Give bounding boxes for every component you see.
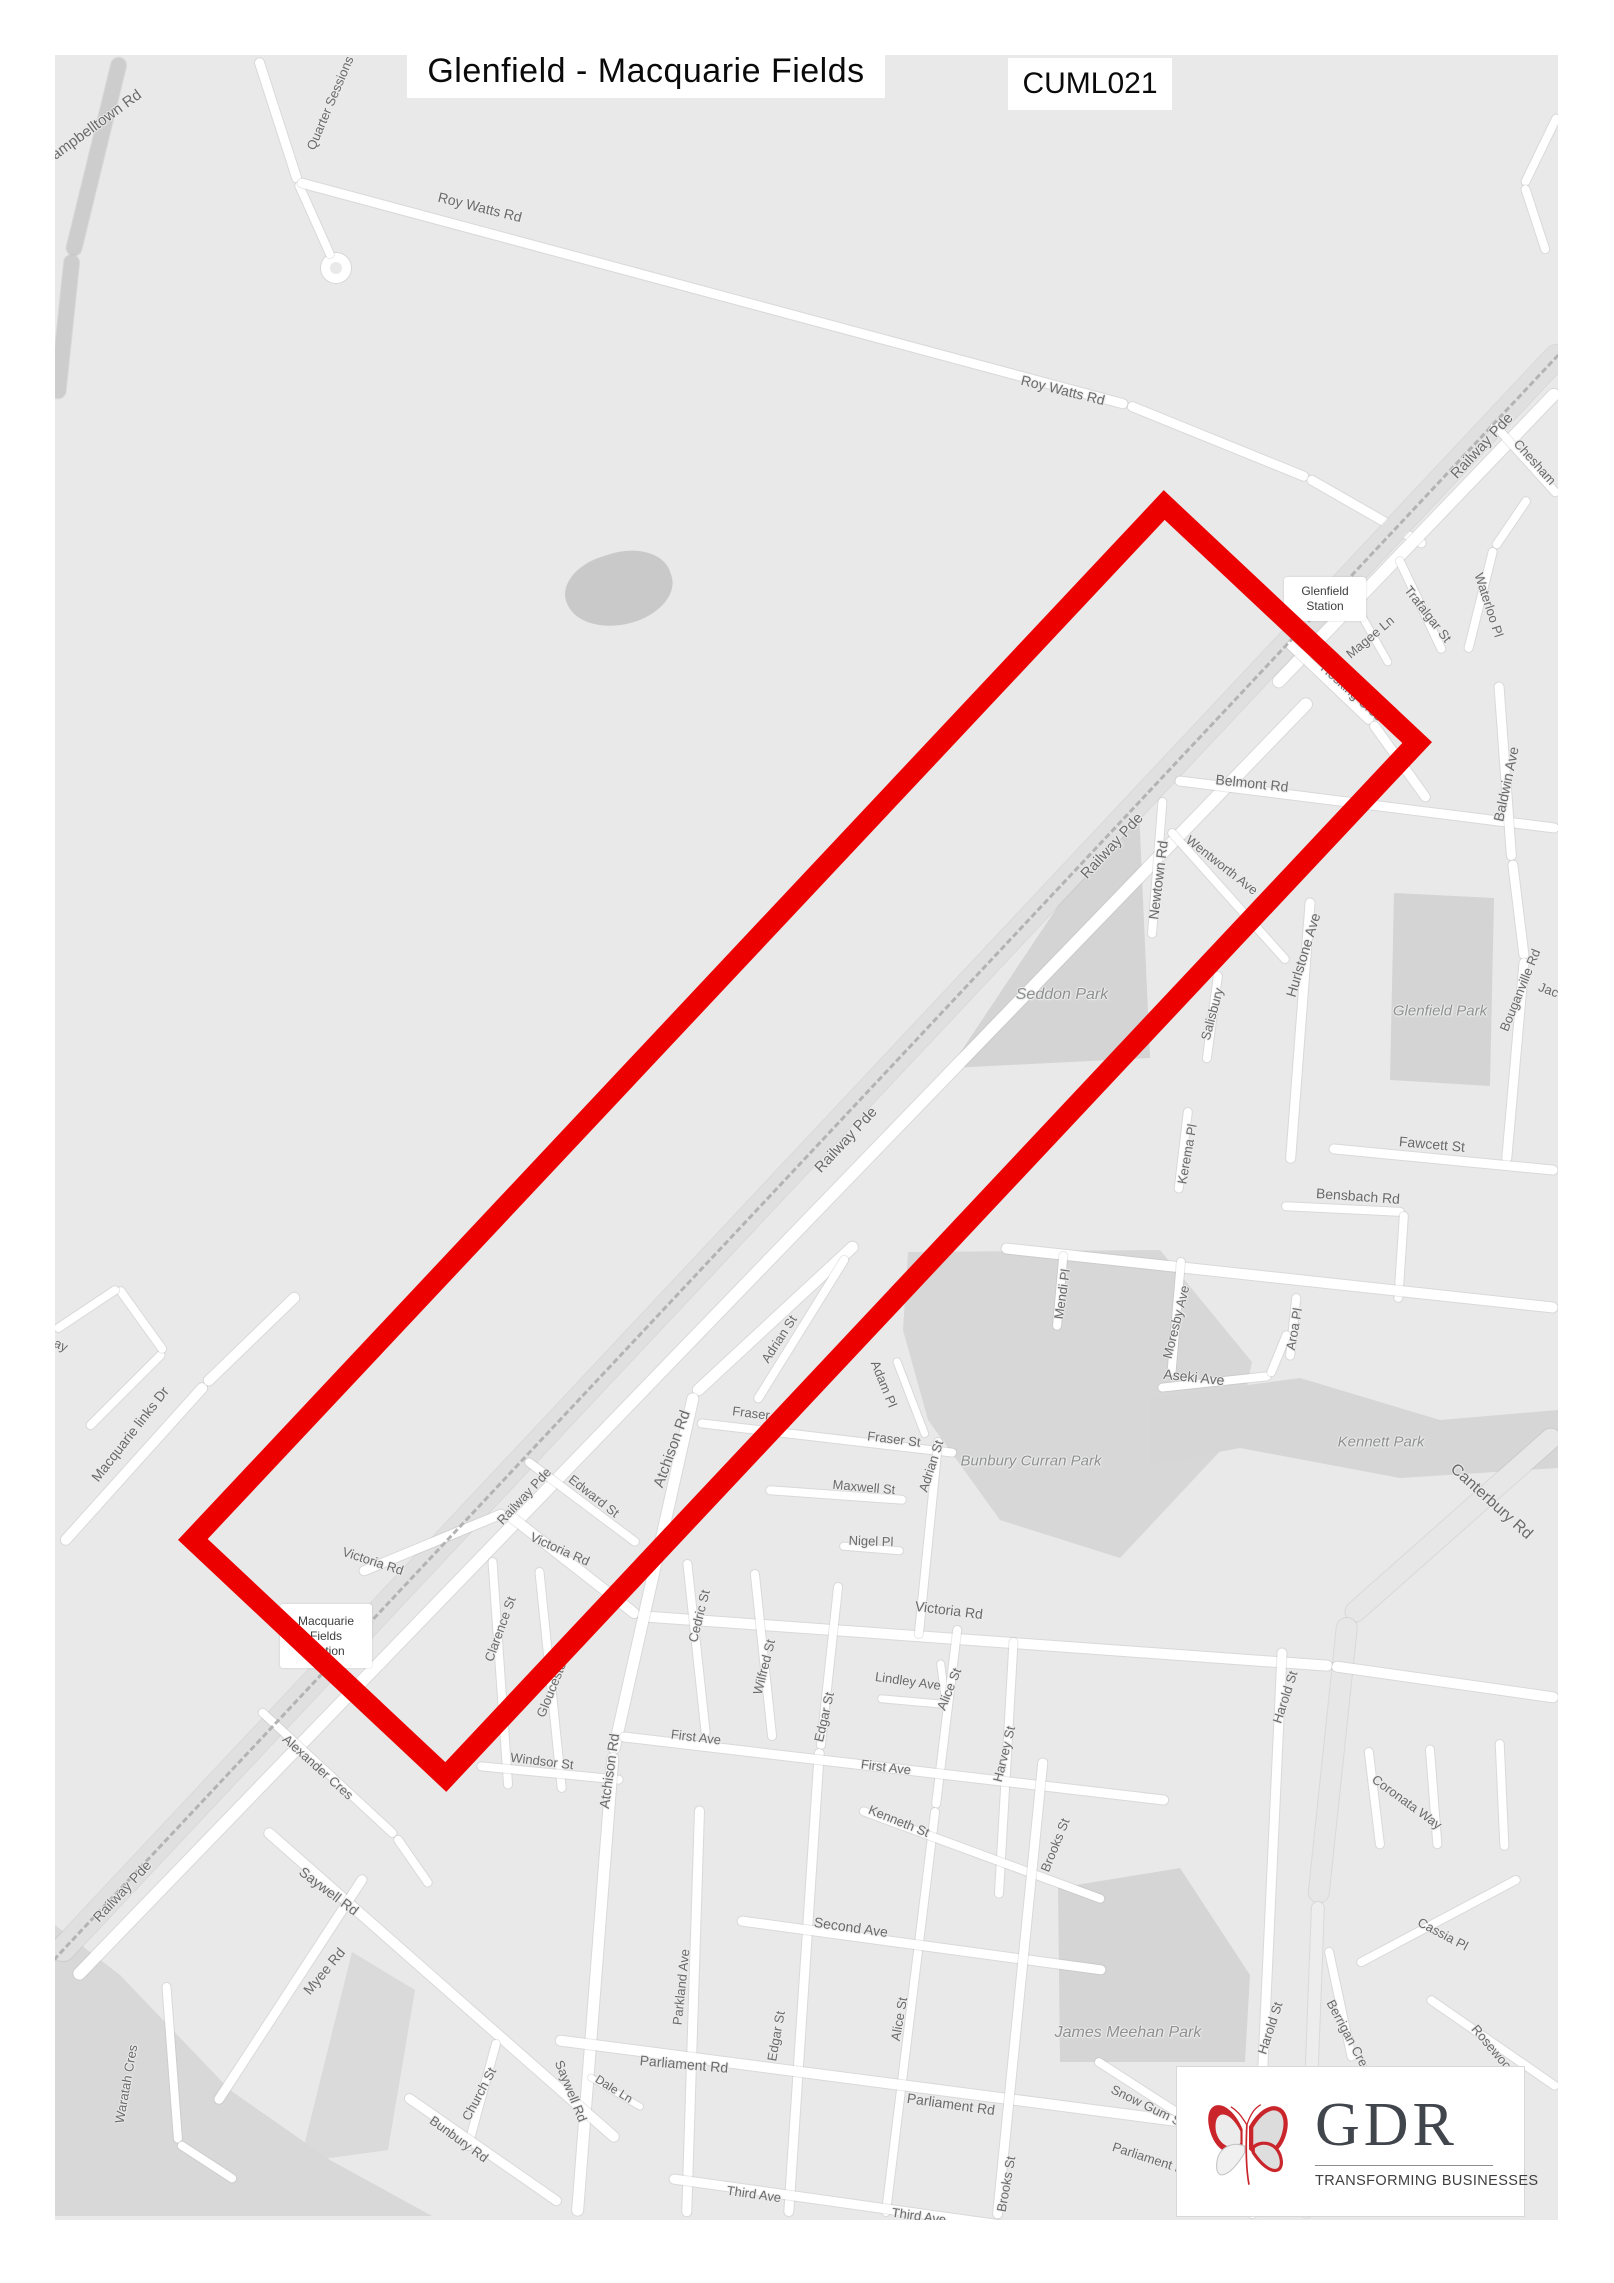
- street-label: Roy Watts Rd: [1019, 372, 1106, 408]
- station-label-line: Station: [1284, 599, 1366, 614]
- road-segment: [55, 1285, 120, 1334]
- road-segment: [393, 1834, 434, 1888]
- map-world: Campbelltown RdQuarter SessionsRoy Watts…: [55, 55, 1558, 2220]
- park-label: James Meehan Park: [1055, 2024, 1202, 2042]
- road-segment: [572, 1753, 619, 2217]
- road-segment: [254, 57, 303, 184]
- street-label: Edgar St: [764, 2010, 788, 2062]
- road-segment: [1426, 1745, 1442, 1849]
- street-label: Berrigan Cres: [1324, 1997, 1375, 2075]
- road-segment: [785, 1749, 825, 2217]
- road-segment: [58, 1381, 208, 1547]
- road-segment: [683, 1560, 710, 1737]
- map-title-box: Glenfield - Macquarie Fields: [407, 44, 885, 98]
- street-label: Third Ave: [891, 2205, 947, 2220]
- road-segment: [55, 254, 79, 399]
- street-label: Third Ave: [726, 2183, 782, 2205]
- street-label: Salisbury: [1198, 986, 1226, 1042]
- street-label: Wilfred St: [750, 1638, 778, 1696]
- street-label: Jacq: [1537, 979, 1558, 1002]
- road-segment: [1331, 1661, 1558, 1703]
- street-label: Harold St: [1269, 1669, 1300, 1725]
- street-label: Lindley Ave: [874, 1669, 942, 1693]
- park-label: Glenfield Park: [1393, 1003, 1487, 1020]
- street-label: Alexander Cres: [280, 1731, 357, 1802]
- gdr-logo: GDR TRANSFORMING BUSINESSES: [1176, 2066, 1525, 2217]
- street-label: ay: [55, 1335, 70, 1354]
- butterfly-icon: [1185, 2078, 1313, 2206]
- street-label: Bunbury Rd: [427, 2113, 491, 2165]
- highlight-rectangle: [178, 490, 1432, 1792]
- road-segment: [1496, 1740, 1509, 1850]
- road-segment: [1356, 1874, 1522, 1967]
- road-segment: [638, 1611, 1333, 1671]
- page-title: Glenfield - Macquarie Fields: [427, 52, 864, 91]
- street-label: Dale Ln: [593, 2072, 636, 2106]
- street-label: Nigel Pl: [848, 1533, 893, 1550]
- road-segment: [65, 56, 128, 257]
- roundabout: [321, 253, 351, 283]
- park-label: Bunbury Curran Park: [961, 1453, 1102, 1470]
- street-label: Aroa Pl: [1283, 1307, 1305, 1352]
- road-segment: [1508, 859, 1529, 958]
- map-code: CUML021: [1022, 67, 1157, 101]
- road-segment: [932, 1626, 962, 1809]
- street-label: Kenneth St: [866, 1802, 931, 1840]
- street-label: Baldwin Ave: [1490, 745, 1521, 823]
- station-label-line: Glenfield: [1284, 584, 1366, 599]
- road-segment: [297, 178, 1129, 410]
- logo-text: GDR: [1315, 2094, 1458, 2156]
- logo-tagline: TRANSFORMING BUSINESSES: [1315, 2173, 1539, 2189]
- road-segment: [882, 1808, 940, 2217]
- logo-divider: [1315, 2165, 1493, 2166]
- road-segment: [1520, 113, 1558, 186]
- street-label: Chesham: [1511, 436, 1558, 487]
- street-label: First Ave: [860, 1756, 912, 1777]
- street-label: Atchison Rd: [596, 1733, 622, 1810]
- road-segment: [202, 1290, 302, 1387]
- street-label: Edgar St: [811, 1691, 837, 1744]
- map-code-box: CUML021: [1008, 58, 1172, 110]
- street-label: Harvey St: [990, 1724, 1018, 1783]
- pond-area: [557, 538, 682, 640]
- road-segment: [115, 1286, 167, 1355]
- street-label: Quarter Sessions: [303, 55, 356, 152]
- road-segment: [1520, 184, 1550, 253]
- map-canvas: Campbelltown RdQuarter SessionsRoy Watts…: [55, 55, 1558, 2220]
- street-label: Brooks St: [1037, 1816, 1072, 1874]
- road-segment: [1126, 401, 1309, 482]
- road-segment: [1491, 496, 1532, 550]
- page: Campbelltown RdQuarter SessionsRoy Watts…: [0, 0, 1614, 2283]
- road-segment: [1364, 1748, 1384, 1849]
- street-label: Victoria Rd: [914, 1598, 984, 1622]
- street-label: Trafalgar St: [1401, 583, 1454, 645]
- park-label: Kennett Park: [1338, 1434, 1425, 1451]
- road-segment: [669, 2174, 1012, 2220]
